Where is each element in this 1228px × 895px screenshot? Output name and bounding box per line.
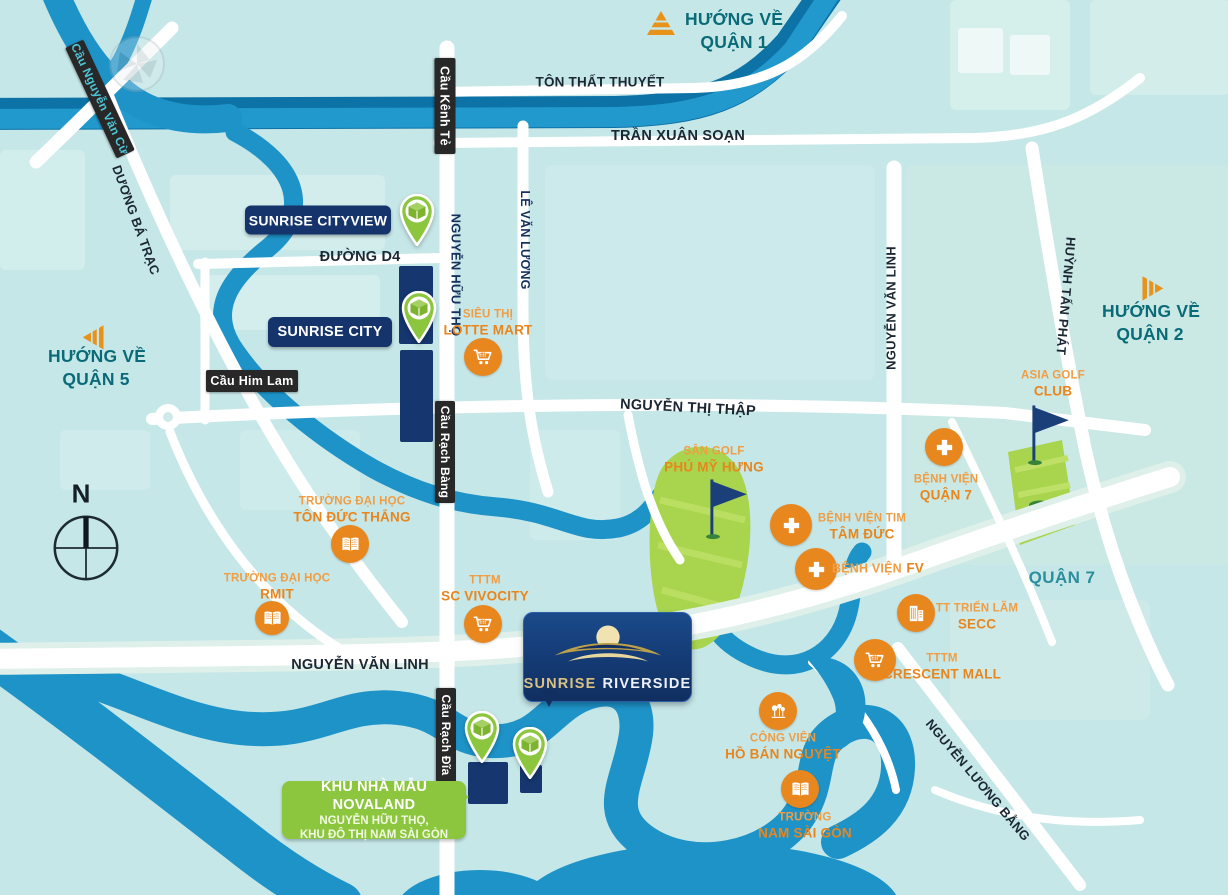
location-map: HƯỚNG VỀ QUẬN 1 HƯỚNG VỀ QUẬN 5 HƯỚNG VỀ… — [0, 0, 1228, 895]
location-pin-icon — [397, 194, 437, 246]
logo-box-tail — [540, 690, 558, 716]
arrow-right-icon — [1136, 275, 1165, 301]
project-pill-sunrise-city: SUNRISE CITY — [268, 317, 392, 347]
compass-north-label: N — [72, 479, 91, 510]
road-label-tran-xuan-soan: TRẦN XUÂN SOẠN — [611, 128, 745, 144]
bridge-kenh-te: Cầu Kênh Tẻ — [435, 58, 456, 154]
building-icon — [897, 594, 935, 632]
book-icon — [331, 525, 369, 563]
poi-lotte-mart-label: SIÊU THỊ LOTTE MART — [444, 308, 533, 337]
direction-line2: QUẬN 2 — [1102, 323, 1198, 346]
project-pill-sunrise-cityview: SUNRISE CITYVIEW — [245, 206, 391, 235]
road-label-ton-that-thuyet: TÔN THẤT THUYẾT — [536, 75, 665, 90]
book-icon — [255, 601, 289, 635]
poi-secc-label: TT TRIỂN LÃM SECC — [936, 602, 1018, 631]
sales-gallery-line2: NGUYỄN HỮU THỌ, — [282, 814, 466, 828]
road-label-le-van-luong: LÊ VĂN LƯƠNG — [518, 190, 532, 289]
poi-nam-sai-gon-label: TRƯỜNG NAM SÀI GÒN — [758, 811, 852, 840]
road-label-nguyen-van-linh-vertical: NGUYỄN VĂN LINH — [884, 246, 899, 370]
golf-flag-icon — [700, 474, 752, 556]
sales-gallery-line3: KHU ĐÔ THỊ NAM SÀI GÒN — [282, 828, 466, 842]
camera-watermark-icon — [110, 37, 164, 91]
direction-district5: HƯỚNG VỀ QUẬN 5 — [48, 345, 144, 391]
logo-wordmark: SUNRISE RIVERSIDE — [524, 676, 691, 692]
direction-district1: HƯỚNG VỀ QUẬN 1 — [646, 8, 783, 54]
direction-district2: HƯỚNG VỀ QUẬN 2 — [1102, 300, 1198, 346]
logo-word-sunrise: SUNRISE — [524, 676, 597, 692]
road-label-nguyen-van-linh: NGUYỄN VĂN LINH — [291, 657, 429, 673]
poi-ton-duc-thang-label: TRƯỜNG ĐẠI HỌC TÔN ĐỨC THẮNG — [293, 495, 410, 524]
book-icon — [781, 770, 819, 808]
bridge-rach-dia: Cầu Rạch Đĩa — [436, 688, 456, 782]
poi-crescent-mall-label: TTTM CRESCENT MALL — [883, 652, 1001, 681]
sales-gallery-line1: KHU NHÀ MẪU NOVALAND — [282, 778, 466, 814]
arrow-left-icon — [82, 324, 111, 350]
callout-pointer — [456, 788, 478, 806]
poi-benh-vien-quan7-label: BỆNH VIỆN QUẬN 7 — [914, 473, 978, 502]
logo-word-riverside: RIVERSIDE — [602, 676, 691, 692]
medical-cross-icon — [925, 428, 963, 466]
bridge-rach-bang: Cầu Rạch Bàng — [435, 401, 455, 503]
poi-rmit-label: TRƯỜNG ĐẠI HỌC RMIT — [224, 572, 330, 601]
park-trees-icon — [759, 692, 797, 730]
poi-fv-label: BỆNH VIỆN FV — [832, 560, 924, 579]
poi-tam-duc-label: BỆNH VIỆN TIM TÂM ĐỨC — [818, 512, 906, 541]
direction-line2: QUẬN 5 — [48, 368, 144, 391]
compass-icon — [47, 508, 125, 586]
cart-icon — [464, 338, 502, 376]
arrow-up-icon — [646, 10, 676, 54]
direction-line1: HƯỚNG VỀ — [1102, 300, 1198, 323]
golf-flag-icon — [1022, 400, 1074, 482]
direction-line2: QUẬN 1 — [685, 31, 783, 54]
poi-sc-vivocity-label: TTTM SC VIVOCITY — [441, 574, 529, 603]
sales-gallery-callout: KHU NHÀ MẪU NOVALAND NGUYỄN HỮU THỌ, KHU… — [282, 781, 466, 839]
road-label-duong-d4: ĐƯỜNG D4 — [320, 249, 401, 265]
location-pin-icon — [510, 727, 550, 779]
area-label-quan7: QUẬN 7 — [1029, 568, 1096, 588]
bridge-him-lam: Cầu Him Lam — [206, 370, 298, 392]
poi-ho-ban-nguyet-label: CÔNG VIÊN HỒ BÁN NGUYỆT — [725, 732, 841, 761]
medical-cross-icon — [795, 548, 837, 590]
sunrise-riverside-logo-box: SUNRISE RIVERSIDE — [523, 612, 692, 702]
sunrise-logo-icon — [545, 618, 671, 668]
direction-line1: HƯỚNG VỀ — [685, 8, 783, 31]
cart-icon — [464, 605, 502, 643]
location-pin-icon — [462, 711, 502, 763]
location-pin-icon — [399, 291, 439, 343]
poi-asia-golf-label: ASIA GOLF CLUB — [1021, 369, 1085, 398]
medical-cross-icon — [770, 504, 812, 546]
poi-phu-my-hung-golf-label: SÂN GOLF PHÚ MỸ HƯNG — [664, 445, 764, 474]
